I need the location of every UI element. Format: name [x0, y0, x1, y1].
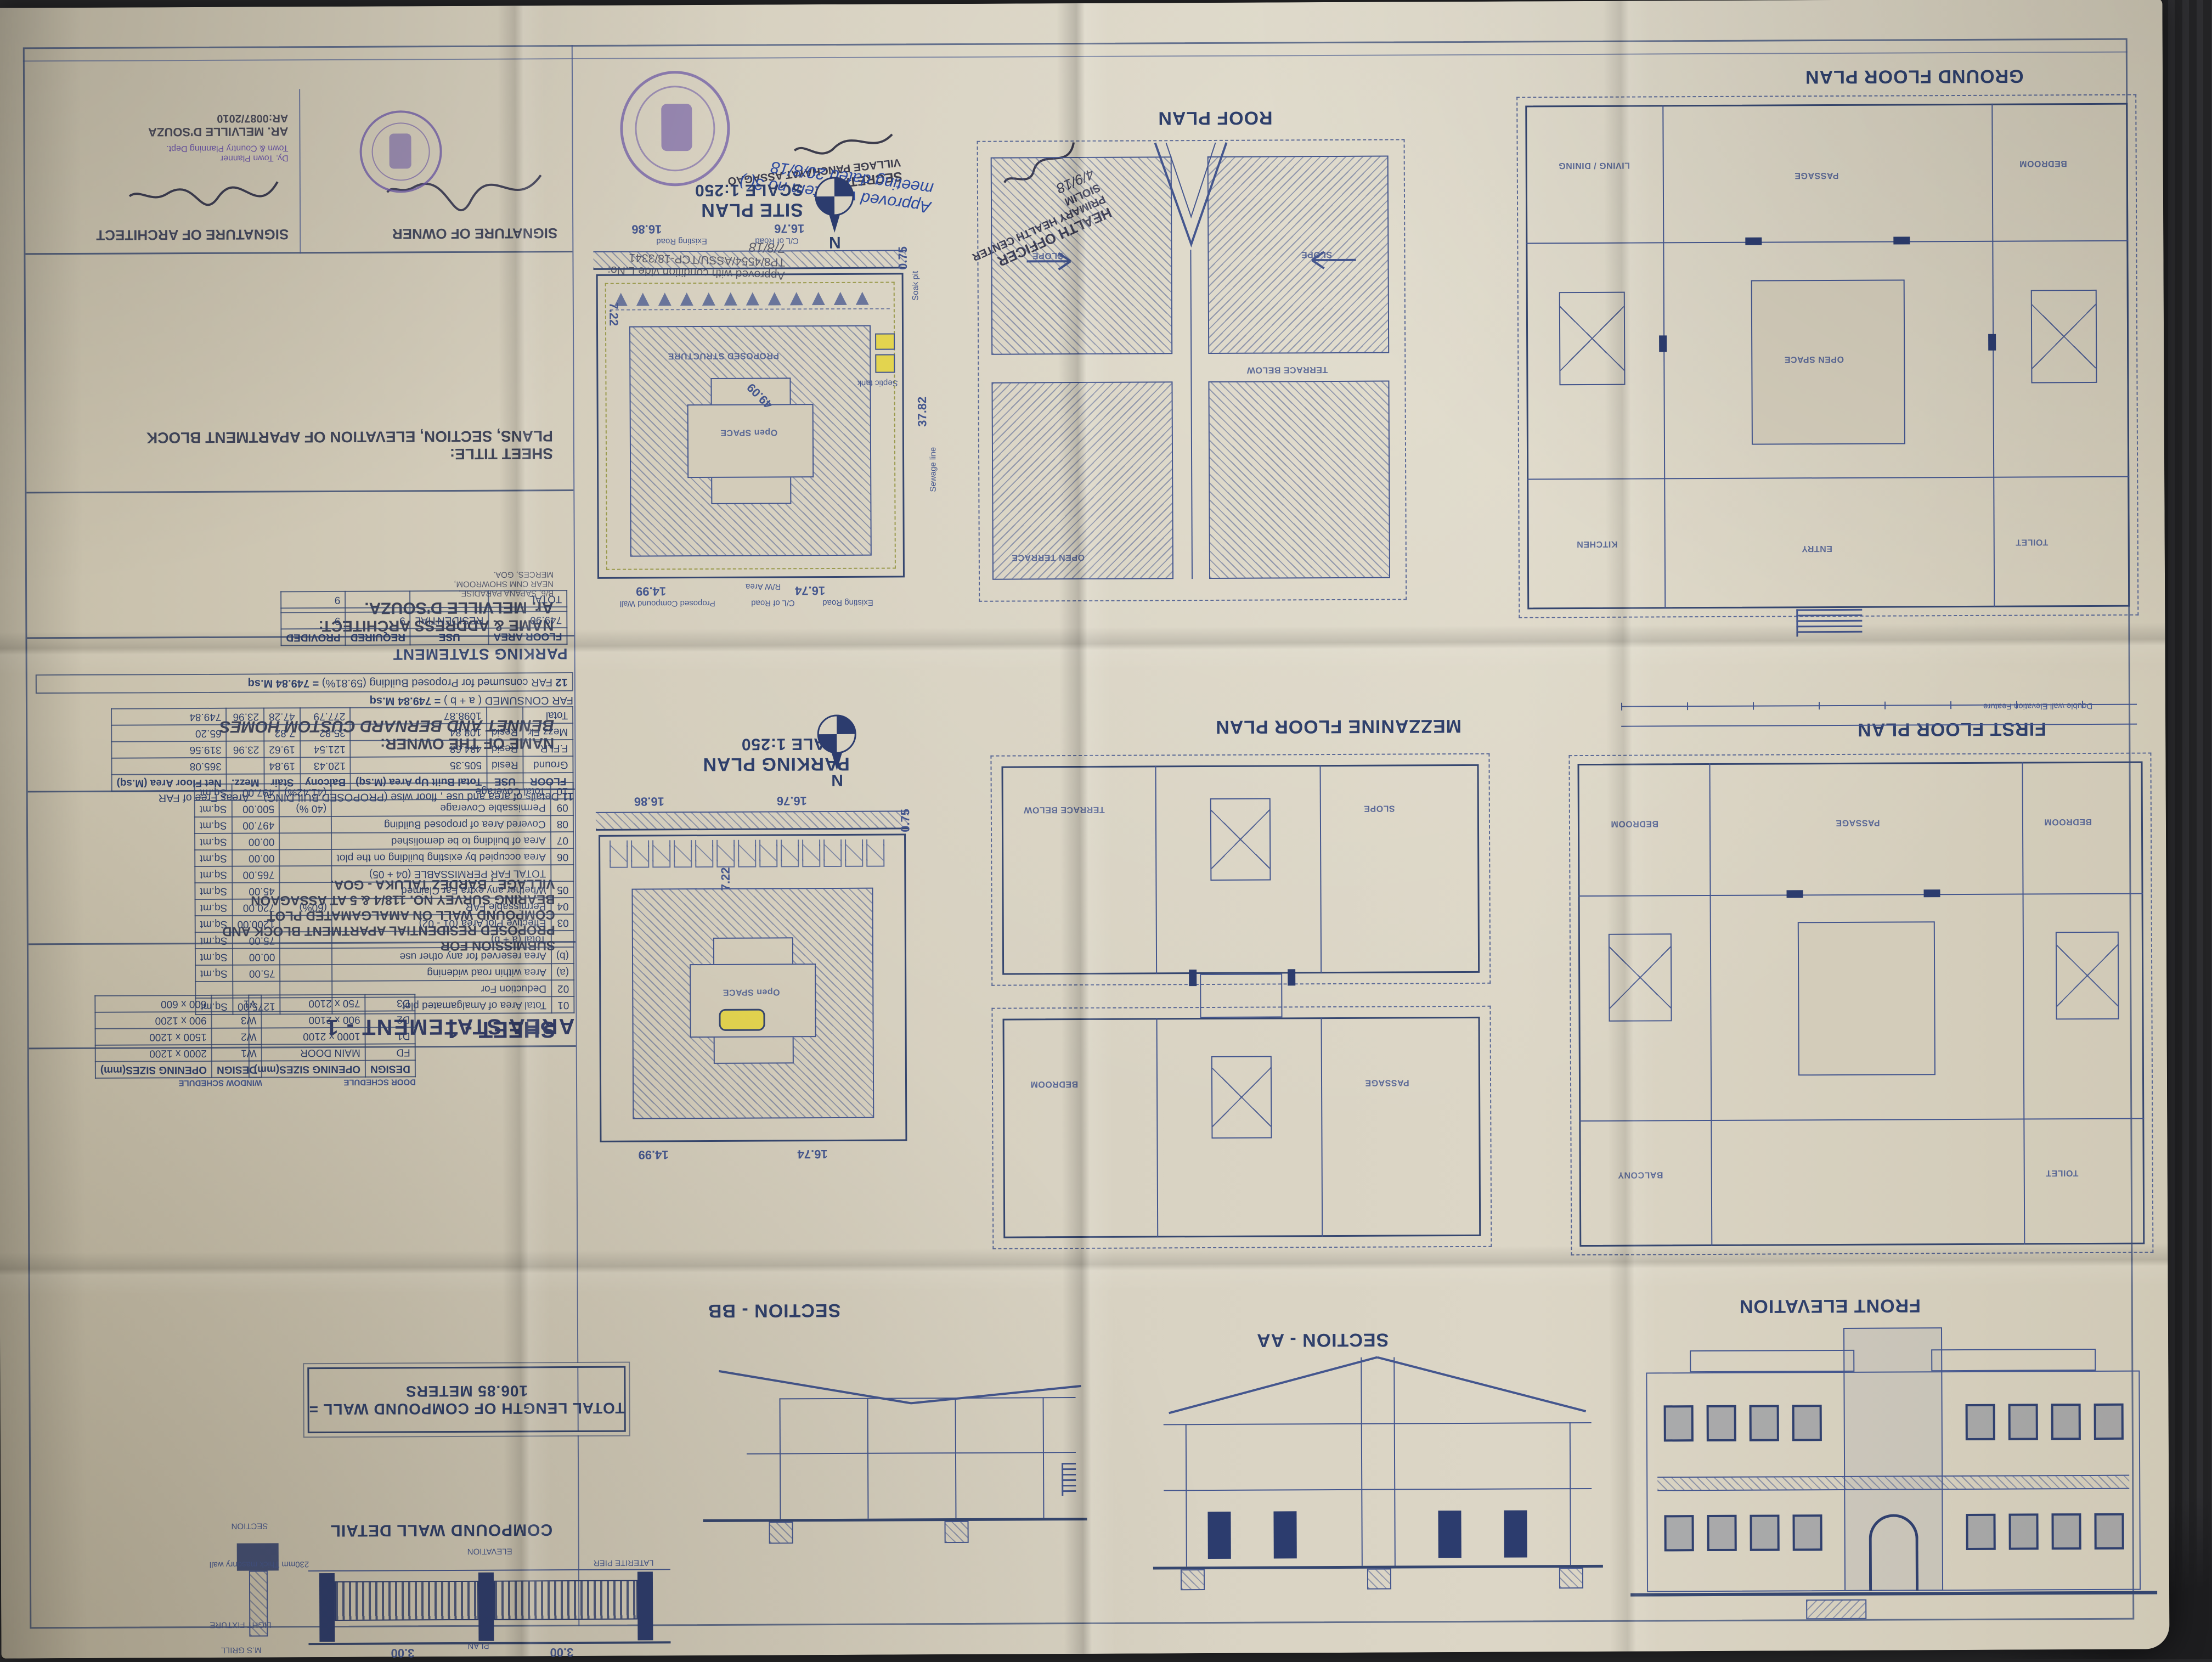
sheet-title-label: SHEET TITLE:	[48, 444, 553, 464]
site-soak-label: Soak pit	[911, 271, 920, 301]
ground-stair-right	[2031, 290, 2097, 384]
parking-dim-top-left: 16.86	[634, 794, 664, 808]
signature-owner-cell: SIGNATURE OF OWNER	[321, 99, 557, 243]
signature-block: SIGNATURE OF ARCHITECT Dy. Town Planner …	[25, 88, 572, 255]
site-plan-scale: SCALE 1:250	[695, 180, 803, 199]
parking-statement-title: PARKING STATEMENT	[294, 645, 568, 663]
site-road-label: Existing Road	[656, 236, 707, 246]
compound-wall-detail: TOTAL LENGTH OF COMPOUND WALL = 106.85 M…	[208, 1322, 693, 1653]
architect-stamp-number: AR:0087/2010	[41, 111, 288, 125]
data-table: FLOORUSETotal Built Up Area (M.sq)Balcon…	[111, 706, 574, 792]
compound-light-label: LIGHT FIXTURE	[210, 1620, 271, 1629]
door-schedule-title: DOOR SCHEDULE	[290, 1077, 416, 1087]
site-septic-tank-2	[875, 354, 895, 373]
parking-plan: PARKING PLAN SCALE 1:250 N 16.86 16.76 0…	[587, 701, 918, 1158]
site-plan-title: SITE PLAN SCALE 1:250	[695, 180, 803, 221]
site-plan-title-text: SITE PLAN	[695, 199, 803, 221]
first-stair-left	[1609, 933, 1672, 1022]
elevation-lower-windows-right	[1959, 1513, 2130, 1550]
parking-highlighted-car	[719, 1009, 765, 1031]
architect-stamp-name: AR. MELVILLE D'SOUZA	[41, 124, 288, 139]
front-elevation-title: FRONT ELEVATION	[1739, 1294, 1921, 1316]
section-bb-title: SECTION - BB	[708, 1299, 841, 1321]
site-cl-label: C/L of Road	[755, 236, 799, 245]
elevation-lower-windows	[1657, 1514, 1829, 1551]
compound-elevation-label: ELEVATION	[467, 1547, 512, 1556]
site-open-space-label: Open SPACE	[720, 427, 777, 437]
roof-plan: ROOF PLAN SLOPE SLOPE OPEN TERRACE TERRA…	[971, 84, 1412, 612]
roof-slope-label-1: SLOPE	[1032, 250, 1063, 260]
compound-masonry-label: 230mm Thick masonry wall	[210, 1559, 309, 1569]
elevation-upper-windows	[1657, 1405, 1829, 1441]
site-dim-setback: 7.22	[606, 302, 620, 326]
architect-signature-squiggle	[124, 165, 289, 226]
far-note-value: = 749.84 M.sq	[248, 677, 319, 690]
site-dim-right: 37.82	[915, 397, 929, 427]
compound-dim-bay-1: 3.00	[391, 1646, 414, 1660]
data-table: DESIGNOPENING SIZES(mm)W12000 x 1200W215…	[94, 995, 262, 1079]
compound-pier-1	[319, 1573, 335, 1642]
signature-architect-label: SIGNATURE OF ARCHITECT	[42, 226, 289, 244]
roof-panel-bl	[991, 381, 1173, 579]
site-structure-label: PROPOSED STRUCTURE	[668, 350, 779, 360]
parking-north-compass-icon: N	[806, 707, 867, 789]
site-plan: SITE PLAN SCALE 1:250 N 16.86 16.76 Exis…	[585, 168, 916, 615]
first-courtyard	[1798, 921, 1936, 1075]
parking-dim-right-top: 0.75	[898, 809, 912, 832]
ground-room-passage: PASSAGE	[1795, 170, 1839, 180]
data-table: DESIGNOPENING SIZES(mm)FDMAIN DOORD11000…	[248, 994, 416, 1078]
roof-terrace-below-label: TERRACE BELOW	[1246, 364, 1328, 375]
parking-bays-row	[610, 840, 888, 868]
compound-pier-2	[478, 1573, 494, 1641]
roof-plan-title: ROOF PLAN	[1158, 106, 1272, 128]
first-toilet-label: TOILET	[2046, 1168, 2079, 1178]
sheet-title-block: SHEET TITLE: PLANS, SECTION, ELEVATION O…	[26, 417, 574, 493]
parking-north-label: N	[807, 770, 867, 789]
ground-stair-left	[1559, 292, 1626, 386]
tcp-officer-stamp-line2: Town & Country Planning Dept.	[42, 143, 289, 154]
compound-dim-bay-2: 3.00	[550, 1645, 573, 1659]
site-road-band	[593, 250, 906, 269]
section-aa: SECTION - AA	[1130, 1312, 1625, 1622]
parking-statement-table: PARKING STATEMENT FLOOR AREAUSEREQUIREDP…	[293, 590, 568, 663]
site-dim-top-right: 16.76	[774, 221, 804, 235]
site-cl-bottom-label: C/L of Road	[751, 598, 795, 607]
compound-total-line2: 106.85 METERS	[405, 1382, 528, 1400]
parking-dim-bottom-right: 16.74	[798, 1147, 828, 1161]
compound-pier-label: LATERITE PIER	[594, 1558, 654, 1567]
site-trees-row	[610, 285, 890, 311]
section-bb: SECTION - BB	[680, 1298, 1098, 1585]
roof-slope-label-2: SLOPE	[1301, 249, 1332, 259]
first-stair-right	[2056, 932, 2119, 1020]
ground-floor-plan: GROUND FLOOR PLAN OPEN SPACE LIVING / DI…	[1509, 59, 2147, 627]
section-aa-title: SECTION - AA	[1256, 1329, 1389, 1351]
data-table: 01Total Area of Amalgamated plot1275.00S…	[194, 782, 575, 1015]
window-schedule-table: WINDOW SCHEDULE DESIGNOPENING SIZES(mm)W…	[136, 995, 262, 1088]
tcp-officer-stamp-line1: Dy. Town Planner	[42, 153, 289, 164]
compound-pier-3	[637, 1571, 653, 1640]
owner-round-stamp-icon	[359, 110, 442, 193]
ground-open-space-label: OPEN SPACE	[1784, 354, 1844, 364]
mezz-bedroom-label: BEDROOM	[1030, 1079, 1078, 1089]
site-wall-label: Proposed Compound Wall	[619, 599, 715, 609]
window-schedule-title: WINDOW SCHEDULE	[136, 1078, 262, 1088]
north-compass-icon: N	[804, 169, 865, 251]
site-road-bottom-label: Existing Road	[822, 598, 873, 607]
site-rw-label: R/W Area	[746, 582, 781, 591]
ground-room-entry: ENTRY	[1802, 543, 1832, 553]
first-plan-title: FIRST FLOOR PLAN	[1857, 718, 2046, 740]
section-bb-stairs	[988, 1463, 1076, 1496]
site-dim-top-left: 16.86	[631, 222, 662, 236]
compound-section-label: SECTION	[231, 1521, 268, 1530]
elevation-upper-windows-right	[1959, 1404, 2130, 1440]
ground-room-bedroom: BEDROOM	[2019, 158, 2067, 168]
section-aa-roof-slopes	[1147, 1351, 1608, 1424]
mezz-terrace-below-label: TERRACE BELOW	[1024, 804, 1105, 815]
signature-architect-cell: SIGNATURE OF ARCHITECT Dy. Town Planner …	[41, 100, 289, 244]
roof-panel-br	[1208, 381, 1390, 579]
ground-room-kitchen: KITCHEN	[1577, 539, 1618, 549]
mezz-passage-label: PASSAGE	[1365, 1077, 1409, 1087]
parking-dim-setback: 7.22	[719, 867, 733, 891]
site-sewage-label: Sewage line	[928, 447, 938, 492]
far-consumed-value: = 749.84 M.sq	[370, 695, 441, 707]
far-note-text: FAR consumed for Proposed Building	[369, 676, 552, 689]
first-passage-label: PASSAGE	[1836, 818, 1880, 827]
site-courtyard-horizontal	[687, 404, 814, 478]
elevation-entrance-arch	[1869, 1514, 1918, 1591]
far-note-pct: (59.81%)	[322, 677, 366, 689]
sheet-title-text: PLANS, SECTION, ELEVATION OF APARTMENT B…	[48, 427, 553, 447]
parking-dim-bottom-left: 14.99	[639, 1147, 669, 1162]
site-septic-tank-1	[875, 333, 895, 350]
section-bb-roof-slope	[713, 1348, 1086, 1410]
site-dim-bottom-left: 14.99	[636, 584, 666, 598]
site-dim-right-top: 0.75	[896, 246, 910, 270]
site-dim-bottom-right: 16.74	[795, 583, 825, 598]
signature-cell-divider	[299, 89, 301, 253]
compound-total-line1: TOTAL LENGTH OF COMPOUND WALL =	[309, 1399, 625, 1418]
parking-dim-top-right: 16.76	[777, 793, 807, 808]
compound-wall-title: COMPOUND WALL DETAIL	[330, 1520, 552, 1540]
mezz-slope-label: SLOPE	[1364, 803, 1395, 813]
parking-open-space-label: Open SPACE	[723, 987, 780, 996]
roof-open-terrace-label: OPEN TERRACE	[1012, 552, 1085, 562]
ground-plan-title: GROUND FLOOR PLAN	[1805, 65, 2024, 87]
blueprint-paper-sheet: SIGNATURE OF ARCHITECT Dy. Town Planner …	[0, 0, 2170, 1659]
elevation-railing-band	[1657, 1475, 2129, 1491]
first-floor-plan: FIRST FLOOR PLAN Double wall Elevation F…	[1561, 651, 2172, 1258]
compound-grill-panel-2	[494, 1580, 637, 1620]
first-bedroom-label-2: BEDROOM	[2044, 816, 2092, 826]
far-consumed-label: FAR CONSUMED ( a + b )	[444, 694, 573, 707]
compound-grill-panel-1	[335, 1581, 478, 1621]
ground-entry-steps	[1796, 609, 1862, 637]
data-table: FLOOR AREAUSEREQUIREDPROVIDED749.90RESID…	[280, 590, 567, 646]
compound-wall-total-box: TOTAL LENGTH OF COMPOUND WALL = 106.85 M…	[307, 1366, 626, 1434]
far-note-no: 12	[556, 676, 568, 688]
site-septic-label: Septic tank	[857, 378, 898, 387]
door-schedule-table: DOOR SCHEDULE DESIGNOPENING SIZES(mm)FDM…	[289, 994, 416, 1087]
parking-road-band	[596, 810, 909, 830]
ground-room-toilet: TOILET	[2016, 537, 2049, 547]
first-bedroom-label-1: BEDROOM	[1611, 818, 1658, 828]
ground-room-living: LIVING / DINING	[1559, 160, 1630, 171]
front-elevation: FRONT ELEVATION	[1624, 1282, 2163, 1636]
mezzanine-floor-plan: MEZZANINE FLOOR PLAN TERRACE BELOW SLOPE…	[979, 638, 1503, 1260]
north-label: N	[804, 233, 865, 251]
photo-of-blueprint: { "sheet": { "sheet_no": "SHEET - 1", "t…	[0, 0, 2212, 1659]
compound-grill-label: M.S GRILL	[221, 1646, 261, 1655]
mezzanine-plan-title: MEZZANINE FLOOR PLAN	[1215, 715, 1462, 737]
dimension-line-upper	[1621, 704, 2137, 706]
first-balcony-label: BALCONY	[1618, 1169, 1663, 1179]
